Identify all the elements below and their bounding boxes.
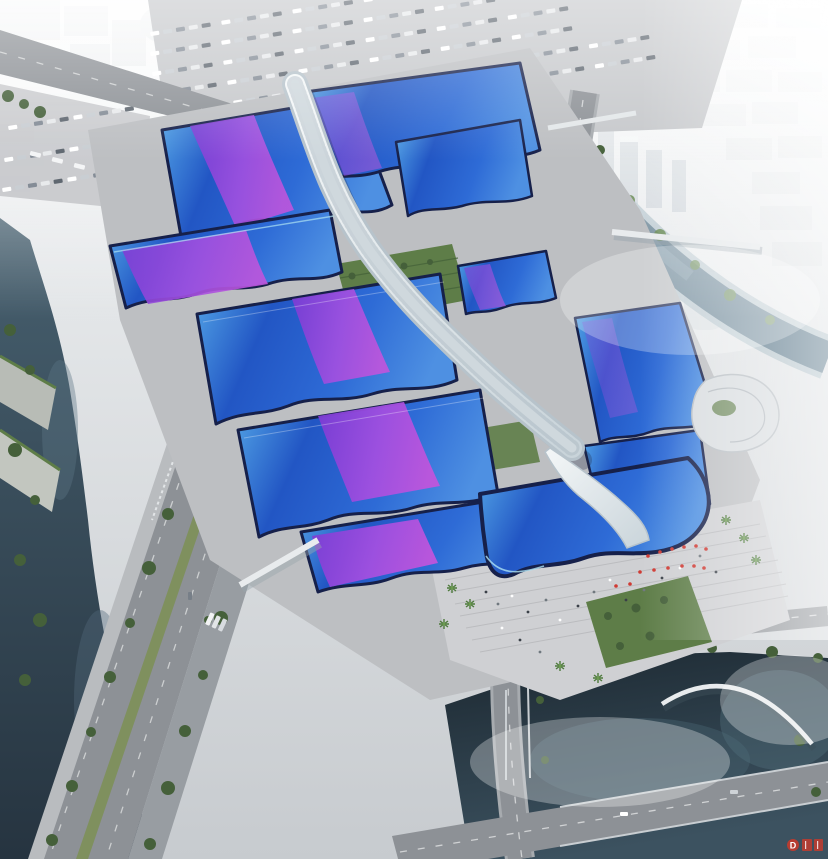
watermark-glyph-slit [817,841,818,849]
mist-cloud [470,717,730,807]
watermark-glyph-block [802,839,812,851]
watermark-glyph-block [814,839,823,851]
fog-overlay-right [640,0,828,640]
scene-aerial-exhibition-center: D [0,0,828,859]
watermark: D [787,839,823,851]
rendering-canvas: D [0,0,828,859]
watermark-glyph-slit [805,841,806,849]
watermark-letter: D [790,841,797,851]
